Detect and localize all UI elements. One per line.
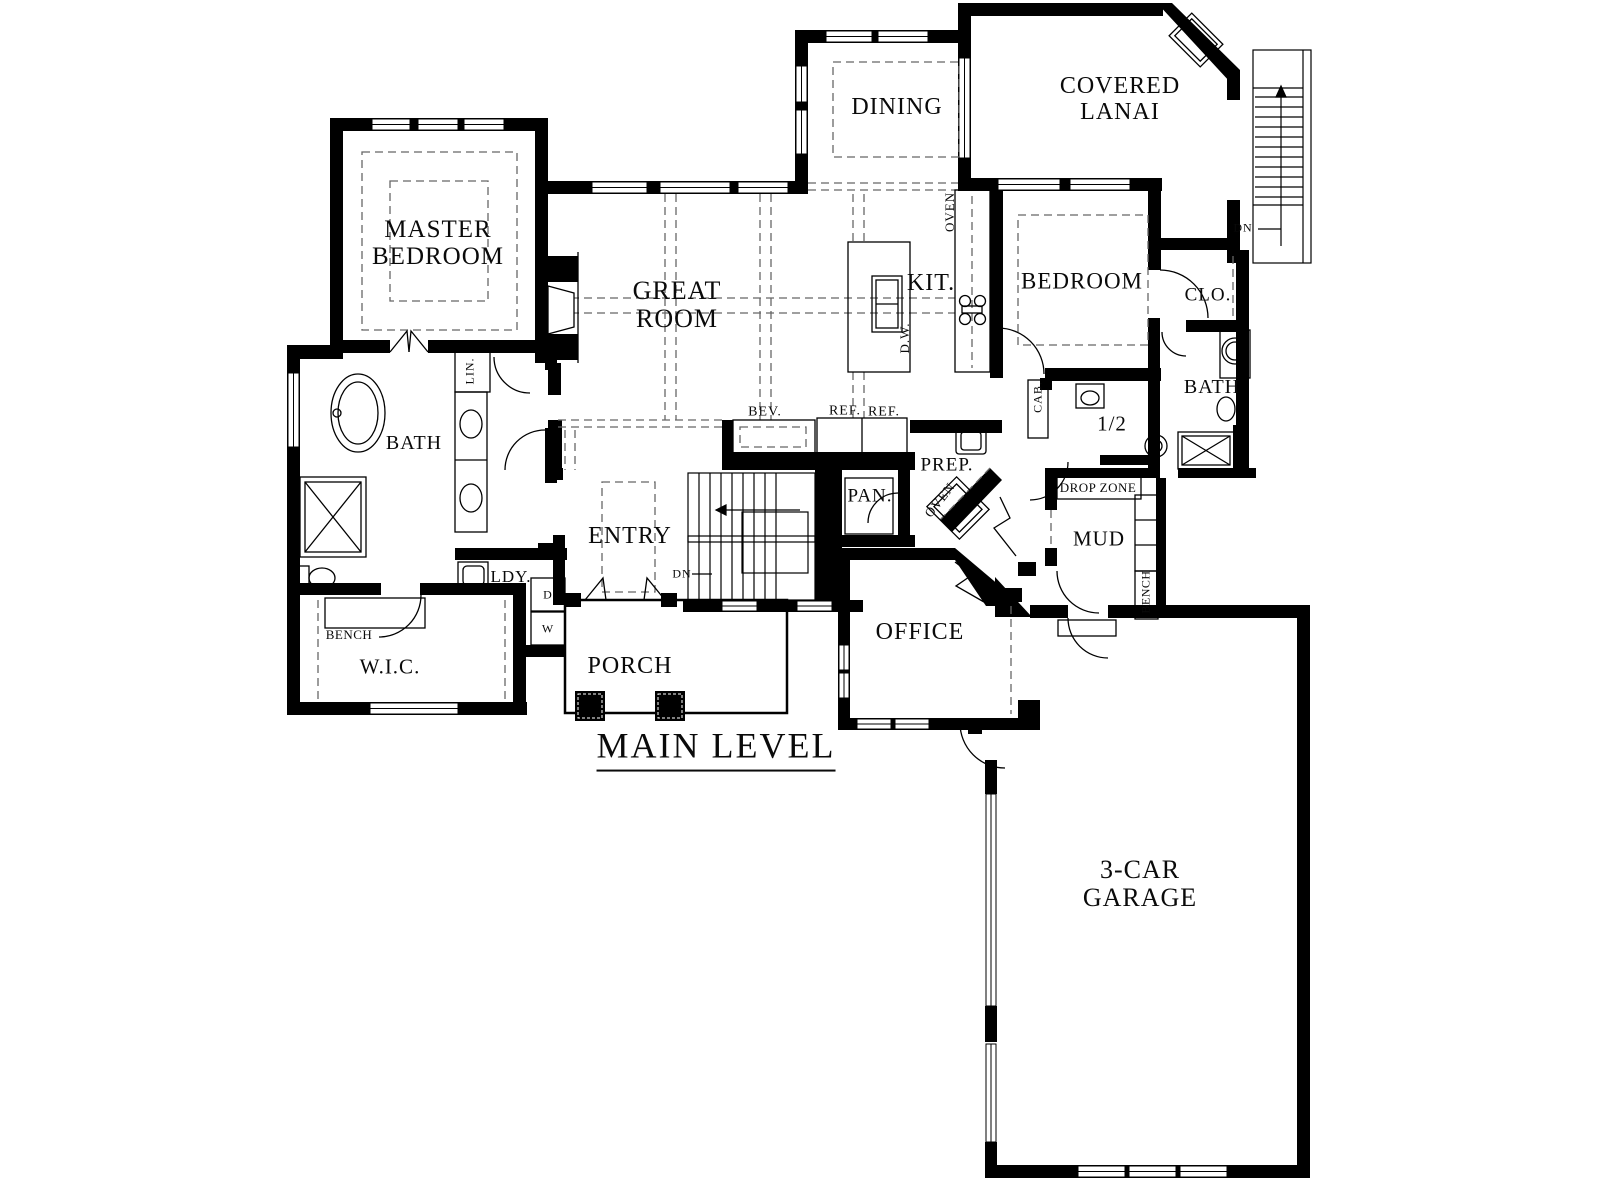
- window: [839, 645, 849, 670]
- window: [418, 119, 458, 130]
- kitchen-hall-door: [994, 497, 1016, 556]
- room-label-bedroom: BEDROOM: [1021, 270, 1143, 295]
- window: [797, 601, 832, 611]
- window: [464, 119, 504, 130]
- room-label-clo: CLO.: [1185, 286, 1232, 307]
- page-title: MAIN LEVEL: [597, 727, 836, 772]
- wic-door-arc: [379, 595, 421, 637]
- bath-right-door-arc: [1162, 332, 1186, 356]
- room-label-wic: W.I.C.: [360, 656, 421, 679]
- garage-door: [1078, 1166, 1125, 1177]
- fireplace: [548, 286, 574, 334]
- fixture-label-washer: W: [542, 623, 554, 636]
- garage-entry-door-arc: [1068, 618, 1108, 658]
- room-label-bath-right: BATH: [1184, 377, 1240, 399]
- room-label-pantry: PAN.: [847, 487, 892, 508]
- window: [370, 703, 458, 714]
- walls: [287, 3, 1310, 1178]
- fixture-label-oven: OVEN: [943, 192, 957, 232]
- window: [738, 182, 788, 193]
- bedroom-door-arc: [998, 328, 1044, 374]
- window: [372, 119, 410, 130]
- window: [1070, 179, 1130, 190]
- room-label-master-bedroom: MASTER BEDROOM: [372, 216, 504, 270]
- fixture-label-ref-1: REF.: [829, 403, 861, 418]
- room-label-office: OFFICE: [876, 620, 965, 646]
- window: [959, 58, 970, 158]
- window: [288, 373, 299, 447]
- window: [660, 182, 730, 193]
- stair-label-dn-entry: DN: [672, 568, 691, 581]
- beverage-counter: [733, 420, 815, 454]
- window: [796, 110, 807, 154]
- fixture-label-drop-zone: DROP ZONE: [1060, 481, 1137, 495]
- room-label-mud: MUD: [1073, 528, 1125, 551]
- bath-left-door-arc: [505, 430, 545, 470]
- window: [826, 31, 872, 42]
- front-door: [585, 578, 606, 600]
- room-label-bath-left: BATH: [386, 433, 442, 455]
- room-label-covered-lanai: COVERED LANAI: [1060, 74, 1180, 126]
- double-door-master: [390, 331, 409, 352]
- room-label-great-room: GREAT ROOM: [633, 277, 722, 333]
- room-label-garage: 3-CAR GARAGE: [1083, 856, 1197, 912]
- room-label-half-bath: 1/2: [1097, 413, 1127, 436]
- room-label-laundry: LDY.: [491, 568, 532, 586]
- sink-icon: [460, 410, 482, 438]
- fixture-label-bench-mud: BENCH: [1140, 570, 1153, 613]
- windows: [288, 31, 1227, 1177]
- fixture-label-beverage: BEV.: [748, 404, 782, 419]
- stair-label-dn-exterior: DN: [1233, 222, 1252, 235]
- room-label-porch: PORCH: [587, 654, 672, 680]
- window: [998, 179, 1060, 190]
- window: [796, 66, 807, 102]
- half-bath-sink-icon: [1076, 384, 1104, 408]
- garage-door: [1129, 1166, 1176, 1177]
- window: [895, 719, 929, 729]
- entry-stairs: [688, 473, 815, 600]
- sink-icon: [460, 484, 482, 512]
- shower-icon: [300, 477, 366, 557]
- vanity: [455, 392, 487, 532]
- window: [592, 182, 647, 193]
- floor-plan: MASTER BEDROOM GREAT ROOM DINING COVERED…: [0, 0, 1600, 1200]
- room-label-dining: DINING: [851, 95, 942, 121]
- room-label-entry: ENTRY: [588, 524, 672, 550]
- window: [857, 719, 891, 729]
- garage-screen: [986, 1044, 996, 1142]
- garage-stoop: [1058, 620, 1116, 636]
- mud-cubbies: [1135, 495, 1158, 571]
- floor-plan-drawing: [0, 0, 1600, 1200]
- porch-columns: [575, 691, 685, 721]
- window: [878, 31, 928, 42]
- fixture-label-cabinet: CAB.: [1032, 381, 1045, 413]
- garage-door: [1180, 1166, 1227, 1177]
- fixture-label-bench-wic: BENCH: [326, 628, 373, 642]
- tub-icon: [331, 374, 385, 452]
- fixture-label-ref-2: REF.: [868, 404, 900, 419]
- exterior-stairs: [1253, 50, 1311, 263]
- fixture-label-linen: LIN.: [464, 358, 477, 385]
- fixture-label-dishwasher: D.W.: [898, 323, 912, 354]
- fixture-label-dryer: D: [543, 589, 553, 602]
- window: [722, 601, 757, 611]
- master-hall-door-arc: [494, 357, 530, 393]
- window: [839, 673, 849, 698]
- garage-screen: [986, 794, 996, 1006]
- shower-icon: [1178, 432, 1234, 469]
- room-label-kitchen: KIT.: [907, 271, 955, 297]
- room-label-prep: PREP.: [920, 456, 973, 477]
